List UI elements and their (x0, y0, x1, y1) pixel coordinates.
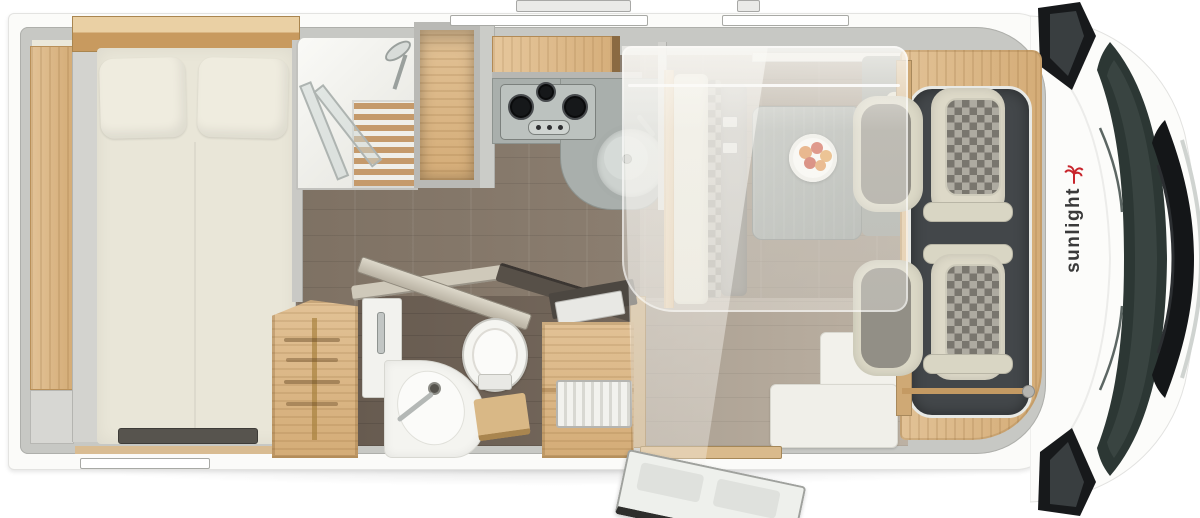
window-top-kitchen (450, 15, 648, 26)
seat-checker-pillow (945, 98, 1001, 196)
bedroom-side-shelf (30, 46, 74, 390)
window-bottom-bedroom (80, 458, 210, 469)
window-top-dinette (722, 15, 849, 26)
seat-checker-pillow (945, 264, 1001, 362)
pillow (99, 57, 187, 139)
cab-rail-pin (1022, 385, 1035, 398)
tall-wardrobe-interior (420, 30, 474, 180)
bed-base-trim (75, 446, 300, 454)
bed-side-unit (72, 46, 98, 442)
hob-burner (508, 94, 534, 120)
palm-logo-icon (1064, 164, 1084, 186)
seat-armrest (923, 202, 1013, 222)
roof-bar (516, 0, 631, 12)
duvet-seam (194, 142, 196, 438)
pillow (197, 57, 289, 139)
clothes-hanger-icon (286, 402, 338, 406)
brand-name: sunlight (1063, 187, 1085, 273)
bath-step-stool (473, 393, 530, 442)
seat-armrest (923, 354, 1013, 374)
door-handle-icon (377, 312, 385, 354)
motorhome-floorplan: sunlight (0, 0, 1200, 518)
cab-front (1030, 0, 1200, 518)
clothes-hanger-icon (284, 338, 340, 342)
hob-controls (528, 120, 570, 135)
clothes-hanger-icon (286, 358, 338, 362)
clothes-hanger-icon (284, 380, 340, 384)
vehicle-shadow (60, 468, 1040, 486)
toilet-hinge (478, 374, 512, 390)
hob-burner (536, 82, 556, 102)
hanger-rail (312, 318, 317, 440)
cab-wood-rail (902, 388, 1030, 394)
foot-bench (770, 384, 898, 448)
cabinet-roller-door (556, 380, 632, 428)
hob-burner (562, 94, 588, 120)
door-panel (636, 462, 704, 503)
roof-bar (737, 0, 760, 12)
bed-head-shelf (72, 16, 300, 52)
bedroom-side-cabinet (30, 390, 74, 444)
door-panel (712, 478, 780, 518)
kitchen-shelf-endcap (612, 36, 620, 76)
bed-vent (118, 428, 258, 444)
brand-logo: sunlight (1058, 164, 1090, 342)
